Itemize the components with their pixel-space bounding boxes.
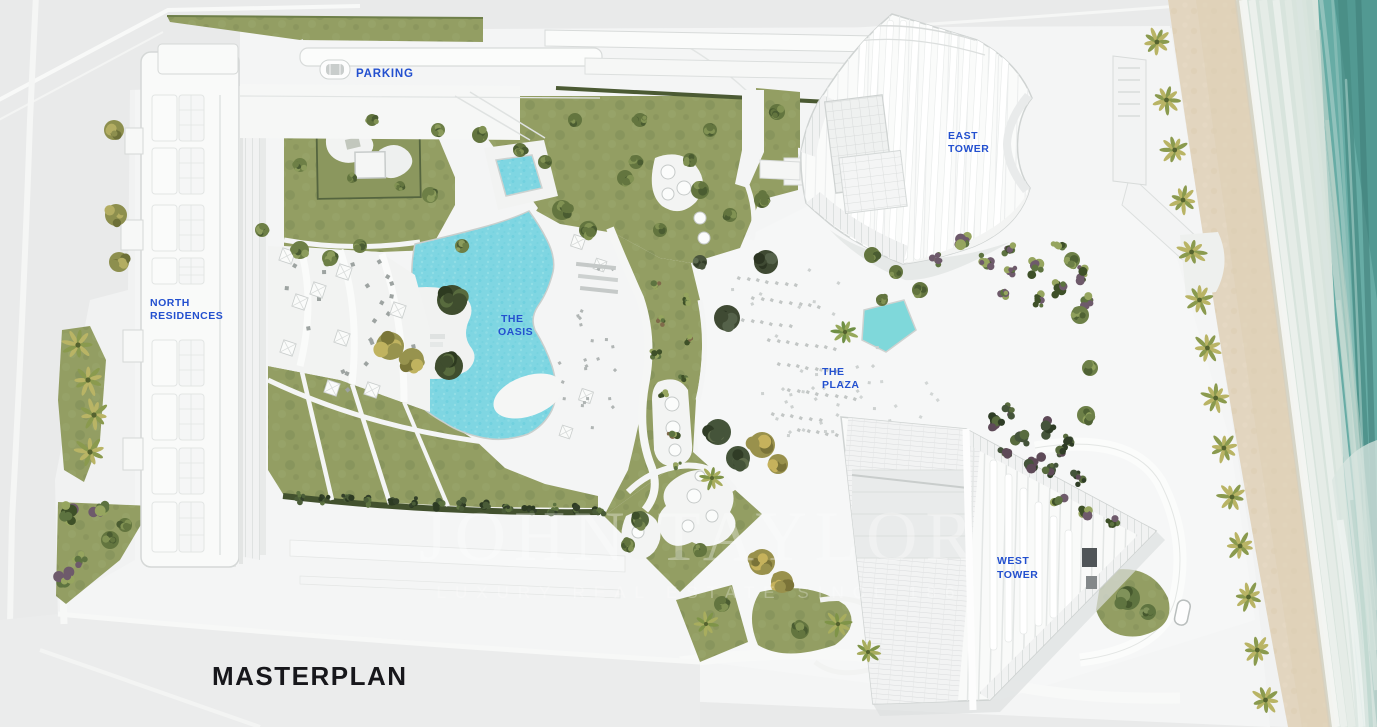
svg-text:PLAZA: PLAZA [822, 379, 860, 391]
svg-text:LUXURY REAL ESTATE SINCE 186: LUXURY REAL ESTATE SINCE 186 [437, 583, 964, 602]
svg-text:TOWER: TOWER [997, 569, 1038, 581]
svg-text:OASIS: OASIS [498, 326, 533, 338]
svg-text:PARKING: PARKING [356, 68, 414, 80]
svg-text:JOHN TAYLOR: JOHN TAYLOR [419, 498, 981, 576]
svg-text:EAST: EAST [948, 130, 978, 142]
svg-text:MASTERPLAN: MASTERPLAN [212, 661, 408, 691]
svg-text:NORTH: NORTH [150, 297, 190, 309]
svg-text:THE: THE [822, 366, 845, 378]
svg-text:TOWER: TOWER [948, 143, 989, 155]
svg-text:THE: THE [501, 313, 524, 325]
svg-text:RESIDENCES: RESIDENCES [150, 310, 223, 322]
svg-text:WEST: WEST [997, 555, 1029, 567]
